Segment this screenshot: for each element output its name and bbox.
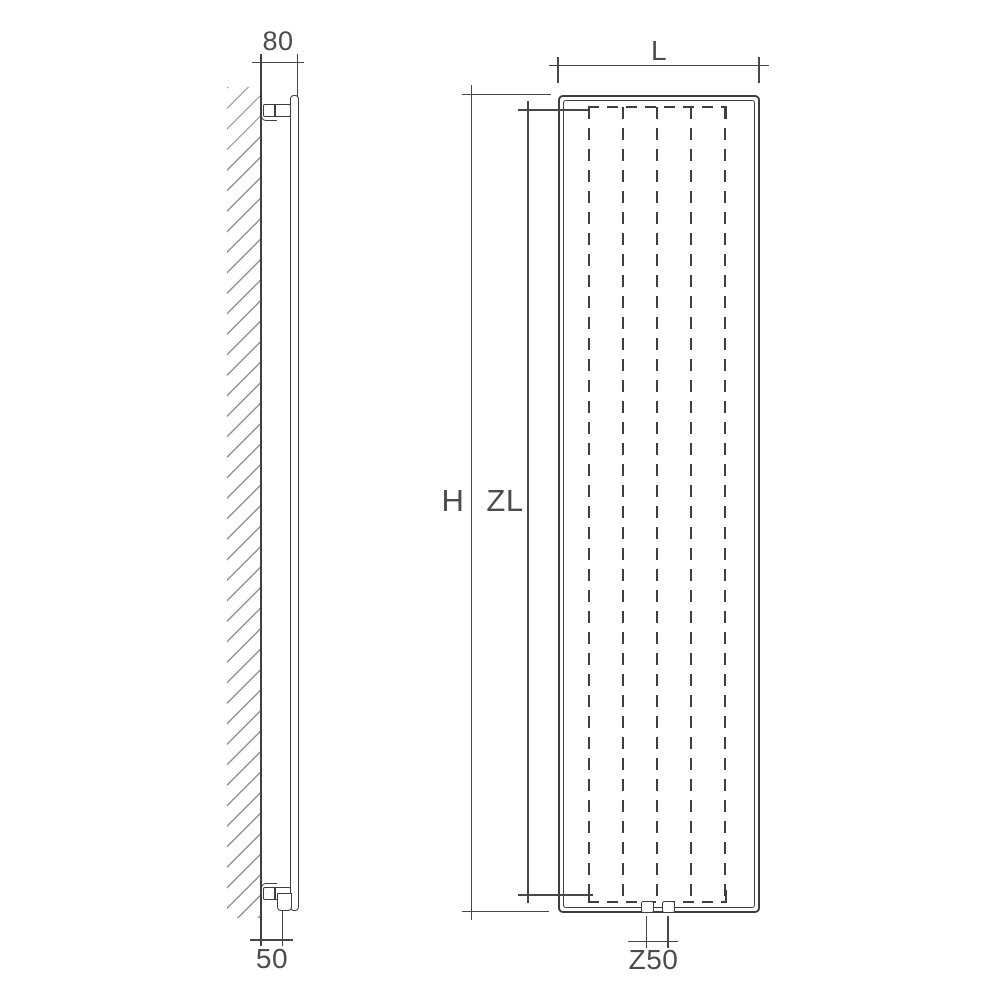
wall-line	[260, 54, 262, 946]
dim-height-label: H	[437, 485, 469, 516]
dim-height-line	[471, 85, 473, 920]
mounting-bracket-top-hook	[261, 110, 277, 121]
dim-width-ext-right	[758, 57, 760, 83]
valve-connection-right	[662, 901, 675, 913]
convector-corner-bottom-right	[725, 890, 727, 903]
dim-pipe-label: 50	[246, 945, 298, 973]
dim-width-ext-left	[557, 57, 559, 83]
convector-dashed-column-2	[622, 107, 624, 903]
dim-convector-label: ZL	[484, 485, 526, 516]
convector-dashed-column-1	[588, 107, 590, 903]
convector-dashed-column-5	[724, 107, 726, 903]
dim-convector-line	[527, 101, 529, 903]
dim-valve-label: Z50	[626, 946, 681, 974]
convector-dashed-column-3	[656, 107, 658, 903]
convector-corner-bottom-left	[588, 890, 590, 903]
dim-depth-label: 80	[250, 28, 306, 55]
convector-dashed-column-4	[690, 107, 692, 903]
dim-depth-line	[252, 62, 304, 64]
dim-width-label: L	[631, 37, 687, 65]
convector-corner-top-right	[725, 106, 727, 119]
dim-convector-ext-top	[518, 109, 588, 111]
dim-pipe-line	[250, 939, 293, 941]
radiator-technical-drawing: 80 50 L H	[0, 0, 1000, 1000]
pipe-stub	[277, 893, 292, 911]
wall-hatch	[227, 87, 260, 918]
dim-height-ext-top	[462, 94, 551, 96]
valve-connection-left	[641, 901, 654, 913]
dim-convector-ext-bottom	[518, 894, 593, 896]
dim-height-ext-bottom	[462, 911, 549, 913]
convector-corner-top-left	[588, 106, 590, 119]
dim-depth-ext-panel	[297, 54, 299, 96]
radiator-side-profile	[290, 95, 299, 911]
mounting-bracket-bottom-divider	[274, 887, 276, 900]
dim-valve-line	[628, 941, 678, 943]
